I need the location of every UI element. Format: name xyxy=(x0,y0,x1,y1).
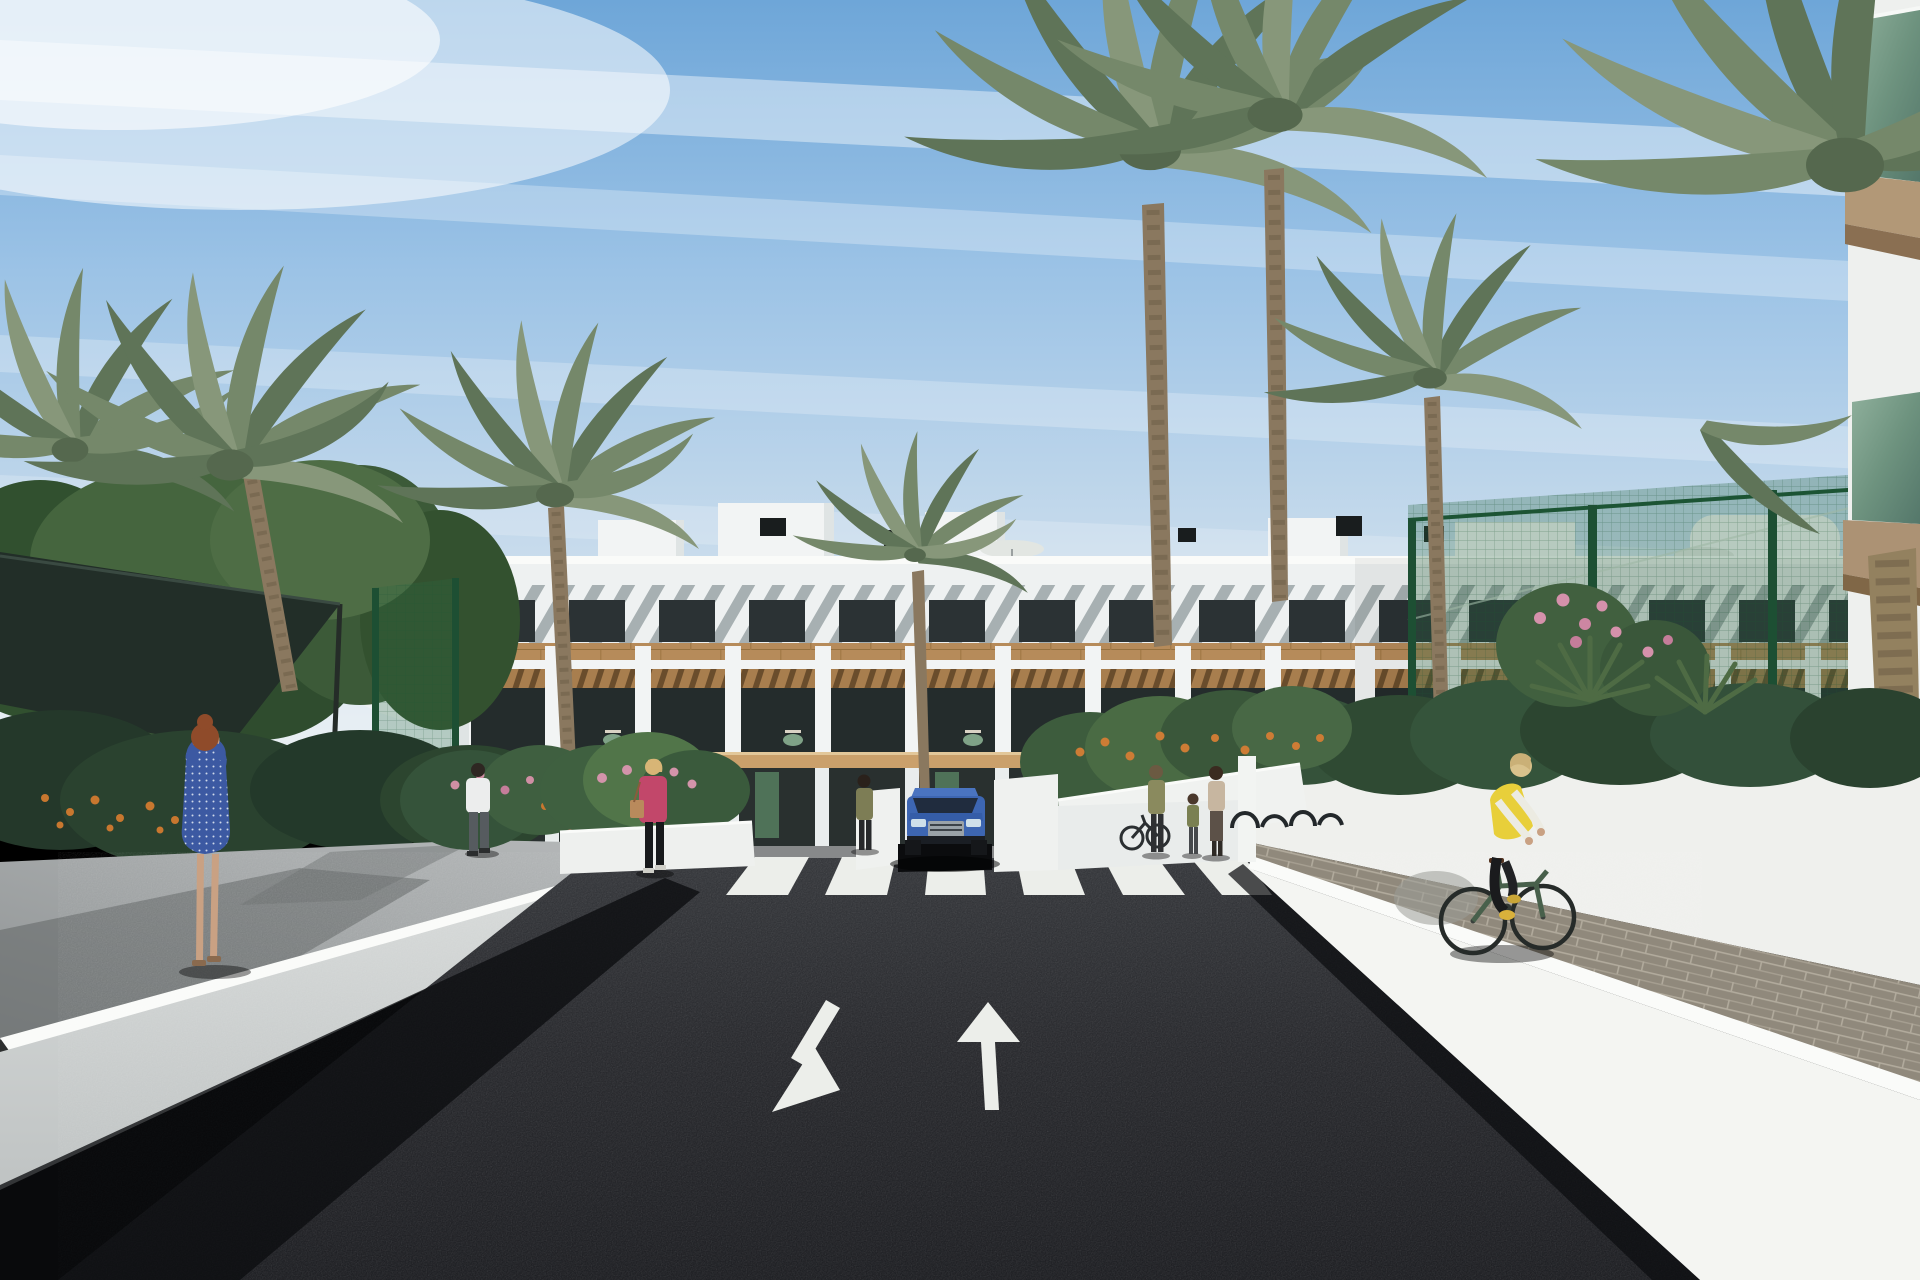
cyclist-wall-shadow xyxy=(1394,871,1478,925)
architectural-render xyxy=(0,0,1920,1280)
headlight-left xyxy=(911,819,926,827)
windshield xyxy=(913,798,978,813)
render-canvas xyxy=(0,0,1920,1280)
headlight-right xyxy=(966,819,981,827)
gate-pillar xyxy=(1238,756,1256,862)
handbag xyxy=(630,800,644,818)
